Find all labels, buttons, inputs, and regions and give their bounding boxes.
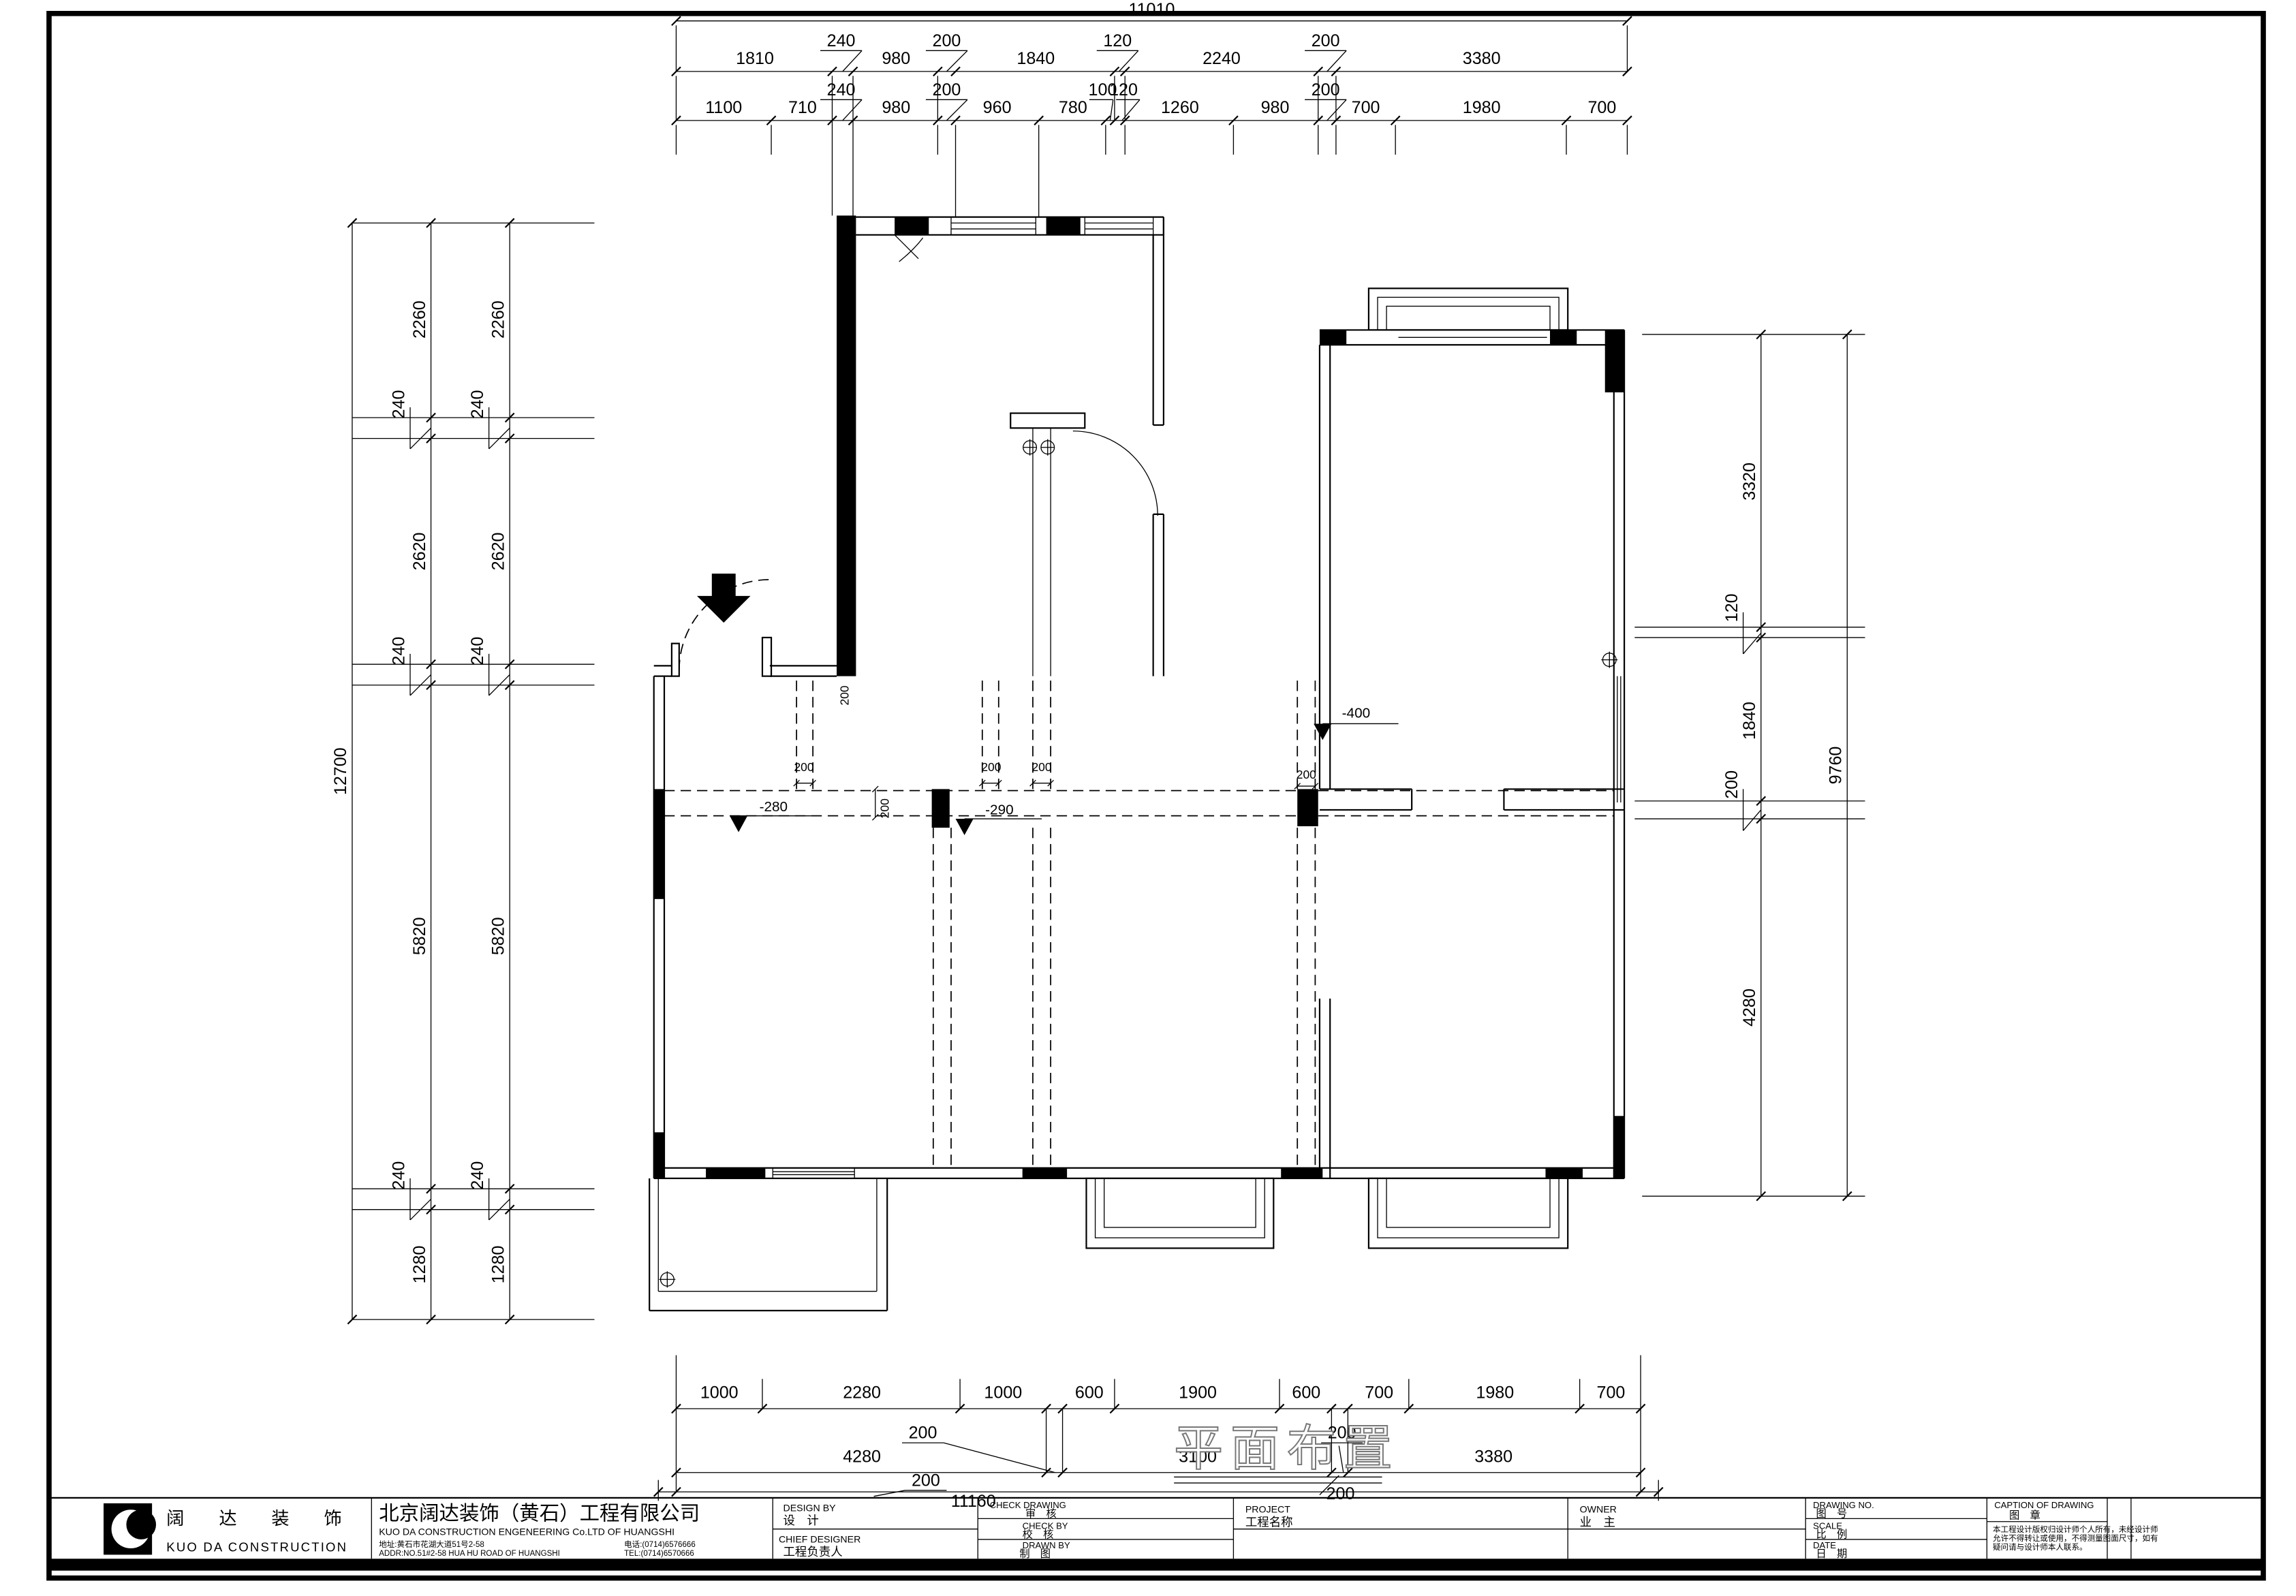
dim-label: 1260: [1161, 98, 1199, 117]
dim-label: 200: [1297, 768, 1316, 781]
level-label: -290: [985, 802, 1013, 817]
dim-label: 2280: [843, 1383, 881, 1403]
dim-label: 2240: [1203, 49, 1241, 68]
drawing-sheet: 11010 1810 240 980 200 1840 120 2240 200…: [0, 0, 2296, 1596]
dim-label: 200: [909, 1424, 937, 1443]
dim-label: 700: [1597, 1383, 1626, 1403]
dim-label: 200: [1722, 770, 1741, 799]
dim-label: 1980: [1463, 98, 1501, 117]
field-date-cn: 日 期: [1816, 1548, 1847, 1560]
field-caption-en: CAPTION OF DRAWING: [1994, 1500, 2094, 1510]
dim-label: 2260: [410, 300, 429, 339]
dimension-chain-right: 3320 120 1840 200 4280 9760: [1634, 330, 1865, 1200]
dim-label: 11010: [1129, 0, 1175, 19]
dim-label: 3380: [1474, 1448, 1512, 1467]
bay-window: [1369, 288, 1568, 330]
dim-label: 710: [788, 98, 817, 117]
dim-label: 240: [468, 390, 487, 419]
dimension-chain-bottom: 1000 2280 1000 600 1900 600 700 1980 700…: [654, 1355, 1663, 1510]
wall-divider-bc: [1320, 789, 1624, 810]
plan-caption: 平面布置: [1174, 1422, 1399, 1483]
dim-label: 2260: [488, 300, 508, 339]
dim-label: 1000: [984, 1383, 1022, 1403]
dim-label: 5820: [488, 917, 508, 955]
dim-label: 600: [1292, 1383, 1320, 1403]
wall-top-room-a: [856, 217, 1164, 262]
company-logo: 阔 达 装 饰 KUO DA CONSTRUCTION: [104, 1504, 357, 1554]
dim-label: 200: [912, 1471, 940, 1490]
dim-label: 200: [878, 798, 891, 818]
dim-label: 200: [1327, 1484, 1355, 1503]
floor-plan: -280 -290 -400 200 200 200 200 200 200: [649, 215, 1624, 1311]
company-name-en: KUO DA CONSTRUCTION ENGENEERING Co.LTD O…: [379, 1527, 674, 1537]
field-check-by-cn: 校 核: [1023, 1529, 1054, 1541]
dim-label: 2620: [488, 533, 508, 571]
dim-label: 700: [1365, 1383, 1393, 1403]
dim-label: 1280: [410, 1246, 429, 1284]
title-block: 阔 达 装 饰 KUO DA CONSTRUCTION 北京阔达装饰（黄石）工程…: [49, 1498, 2263, 1571]
company-phone: 电话:(0714)6576666: [624, 1540, 696, 1549]
dim-label: 600: [1075, 1383, 1104, 1403]
dim-label: 120: [1109, 80, 1138, 99]
field-design-by-cn: 设 计: [784, 1514, 819, 1527]
dim-label: 2620: [410, 533, 429, 571]
dim-label: 5820: [410, 917, 429, 955]
brand-name-cn: 阔 达 装 饰: [166, 1508, 356, 1529]
dim-label: 200: [933, 80, 961, 99]
wall-entry: [654, 574, 837, 676]
company-phone-en: TEL:(0714)6570666: [624, 1550, 694, 1558]
dim-label: 200: [1031, 760, 1051, 774]
bay-window-bottom-right: [1369, 1178, 1568, 1249]
dim-label: 240: [468, 637, 487, 666]
field-project-cn: 工程名称: [1245, 1515, 1293, 1529]
dim-label: 1000: [700, 1383, 739, 1403]
dim-label: 3320: [1740, 463, 1759, 501]
dim-label: 240: [389, 1161, 408, 1190]
field-owner-cn: 业 主: [1580, 1515, 1615, 1529]
dim-label: 240: [389, 390, 408, 419]
field-chief-designer-en: CHIEF DESIGNER: [779, 1534, 860, 1545]
bay-window-bottom-middle: [1086, 1178, 1273, 1249]
dim-label: 240: [389, 637, 408, 666]
level-label: -400: [1342, 706, 1370, 721]
field-design-by-en: DESIGN BY: [784, 1503, 837, 1514]
dim-label: 3380: [1463, 49, 1501, 68]
wall-right: [1614, 330, 1624, 1178]
dim-label: 120: [1103, 31, 1132, 50]
dim-label: 200: [933, 31, 961, 50]
field-caption-cn: 图 章: [2009, 1509, 2041, 1521]
dimension-chain-left: 12700 2260 240 2620 240 5820 240 1280 22…: [331, 219, 594, 1324]
dim-label: 120: [1722, 593, 1741, 622]
disclaimer-line: 本工程设计版权归设计师个人所有，未经设计师: [1993, 1524, 2158, 1534]
wall-left: [654, 676, 664, 1178]
dim-label: 240: [827, 80, 856, 99]
company-address-en: ADDR:NO.51#2-58 HUA HU ROAD OF HUANGSHI: [379, 1550, 560, 1558]
dim-label: 200: [981, 760, 1001, 774]
small-dims: 200 200 200 200 200 200: [794, 685, 1318, 820]
company-name: 北京阔达装饰（黄石）工程有限公司: [379, 1503, 700, 1525]
dim-label: 200: [794, 760, 813, 774]
company-address: 地址:黄石市花湖大道51号2-58: [379, 1539, 484, 1549]
dim-label: 980: [882, 98, 910, 117]
dim-label: 12700: [331, 747, 350, 795]
brand-name-en: KUO DA CONSTRUCTION: [166, 1539, 347, 1554]
field-project-en: PROJECT: [1245, 1505, 1290, 1516]
dim-label: 980: [1261, 98, 1290, 117]
wall-bottom: [654, 1168, 1624, 1178]
dim-label: 200: [1312, 80, 1340, 99]
dim-label: 1980: [1476, 1383, 1514, 1403]
dim-label: 200: [1312, 31, 1340, 50]
dim-label: 4280: [1740, 988, 1759, 1027]
dim-label: 960: [983, 98, 1012, 117]
field-check-drawing-cn: 审 核: [1025, 1508, 1057, 1520]
field-owner-en: OWNER: [1580, 1505, 1617, 1516]
company-info: 北京阔达装饰（黄石）工程有限公司 KUO DA CONSTRUCTION ENG…: [379, 1503, 700, 1558]
dim-label: 1900: [1179, 1383, 1217, 1403]
dim-label: 700: [1587, 98, 1616, 117]
disclaimer-line: 允许不得转让或使用，不得测量图面尺寸，如有: [1993, 1533, 2158, 1543]
dim-label: 1840: [1740, 702, 1759, 740]
level-label: -280: [760, 799, 788, 815]
floor-plan-drawing: 11010 1810 240 980 200 1840 120 2240 200…: [0, 0, 2296, 1596]
dimension-chain-top: 11010 1810 240 980 200 1840 120 2240 200…: [672, 0, 1632, 217]
utility-symbols: [659, 439, 1617, 1287]
door-arc: [1073, 431, 1158, 516]
dim-label: 1810: [736, 49, 774, 68]
wall-room-a-right: [1073, 217, 1164, 676]
dim-label: 980: [882, 49, 910, 68]
dim-label: 240: [468, 1161, 487, 1190]
disclaimer-line: 疑问请与设计师本人联系。: [1993, 1542, 2088, 1552]
dim-label: 240: [827, 31, 856, 50]
dim-label: 1840: [1017, 49, 1055, 68]
dim-label: 1280: [488, 1246, 508, 1284]
dim-label: 4280: [843, 1448, 881, 1467]
dim-label: 780: [1059, 98, 1087, 117]
field-chief-designer-cn: 工程负责人: [784, 1545, 843, 1559]
entry-arrow-icon: [697, 574, 751, 623]
terrace: [649, 1178, 887, 1311]
field-scale-cn: 比 例: [1816, 1529, 1847, 1541]
dim-label: 700: [1352, 98, 1380, 117]
dim-label: 1100: [705, 98, 742, 117]
dim-label: 9760: [1827, 747, 1846, 785]
dim-label: 200: [837, 685, 851, 705]
plan-caption-text: 平面布置: [1174, 1422, 1399, 1476]
layout-dashed-lines: [664, 680, 1614, 1168]
sheet-border: [49, 14, 2263, 1578]
field-drawing-no-cn: 图 号: [1816, 1508, 1847, 1520]
field-drawn-by-cn: 制 图: [1019, 1548, 1051, 1560]
wall-thick: [837, 215, 856, 676]
room-top-right: [1320, 288, 1624, 1178]
